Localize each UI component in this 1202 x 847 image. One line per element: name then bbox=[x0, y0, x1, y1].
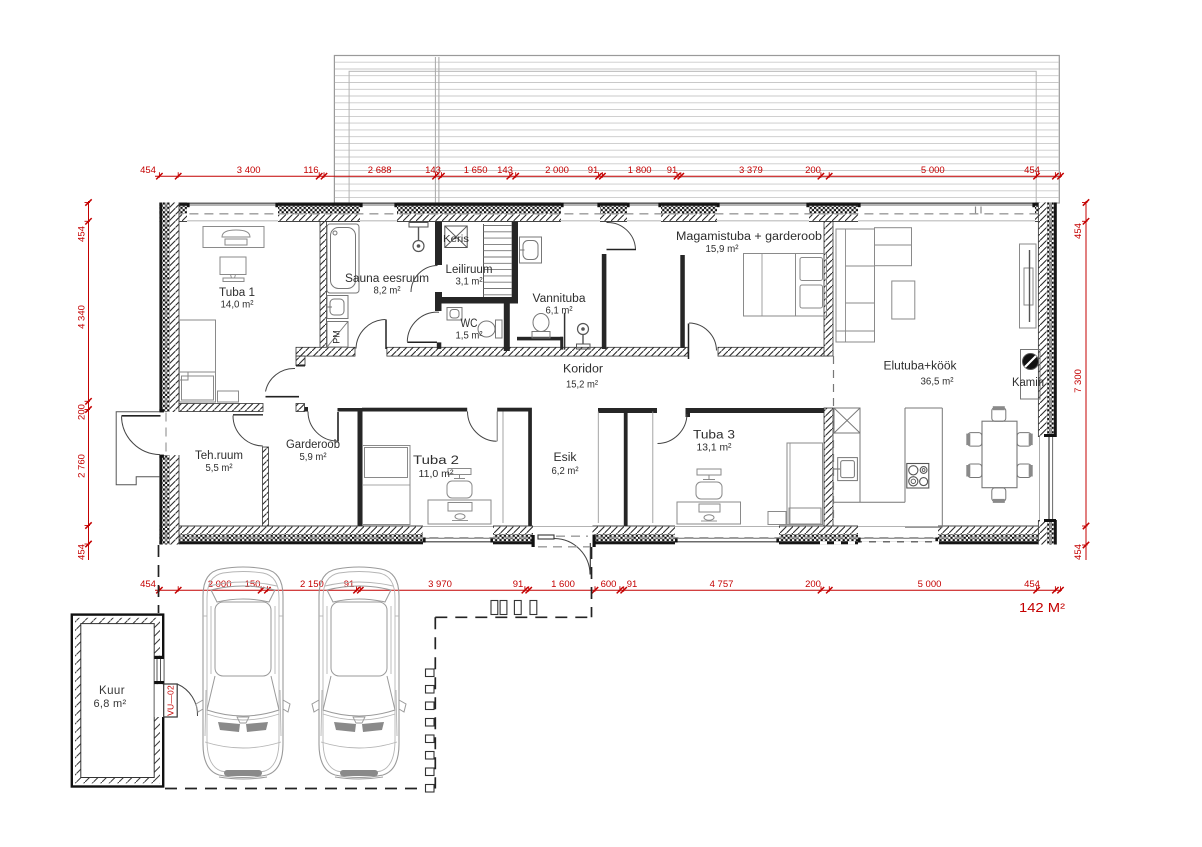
svg-text:VU—02: VU—02 bbox=[166, 685, 176, 716]
svg-text:150: 150 bbox=[245, 579, 261, 590]
svg-text:454: 454 bbox=[1073, 544, 1084, 560]
svg-text:5 000: 5 000 bbox=[921, 165, 945, 176]
svg-text:14,0 m²: 14,0 m² bbox=[221, 300, 255, 311]
svg-text:2 000: 2 000 bbox=[545, 165, 569, 176]
svg-text:4 757: 4 757 bbox=[710, 579, 734, 590]
svg-text:15,2 m²: 15,2 m² bbox=[566, 380, 599, 391]
svg-text:1,5 m²: 1,5 m² bbox=[456, 331, 484, 342]
svg-text:Leiliruum: Leiliruum bbox=[446, 264, 493, 276]
svg-text:Sauna eesruum: Sauna eesruum bbox=[345, 273, 429, 285]
svg-text:4 340: 4 340 bbox=[77, 305, 88, 329]
svg-text:142 M²: 142 M² bbox=[1019, 600, 1066, 615]
svg-text:200: 200 bbox=[77, 404, 88, 420]
svg-text:2 688: 2 688 bbox=[368, 165, 392, 176]
svg-text:WC: WC bbox=[461, 318, 478, 330]
svg-text:13,1 m²: 13,1 m² bbox=[697, 443, 733, 454]
svg-text:454: 454 bbox=[1073, 223, 1084, 239]
svg-text:6,2 m²: 6,2 m² bbox=[552, 466, 580, 477]
svg-text:91: 91 bbox=[667, 165, 678, 176]
svg-text:Vannituba: Vannituba bbox=[533, 293, 587, 305]
svg-text:454: 454 bbox=[77, 544, 88, 560]
svg-text:5,9 m²: 5,9 m² bbox=[300, 452, 328, 463]
svg-text:15,9 m²: 15,9 m² bbox=[706, 244, 740, 255]
svg-text:Tuba 3: Tuba 3 bbox=[693, 430, 735, 442]
svg-text:Esik: Esik bbox=[554, 452, 577, 464]
svg-text:2 760: 2 760 bbox=[77, 454, 88, 478]
svg-text:1 600: 1 600 bbox=[551, 579, 575, 590]
svg-text:Magamistuba + garderoob: Magamistuba + garderoob bbox=[676, 231, 822, 243]
svg-text:91: 91 bbox=[344, 579, 355, 590]
svg-text:454: 454 bbox=[140, 165, 156, 176]
svg-text:36,5 m²: 36,5 m² bbox=[921, 377, 955, 388]
svg-text:Koridor: Koridor bbox=[563, 364, 603, 376]
svg-text:7 300: 7 300 bbox=[1073, 369, 1084, 393]
svg-text:143: 143 bbox=[497, 165, 513, 176]
svg-text:3 970: 3 970 bbox=[428, 579, 452, 590]
svg-text:454: 454 bbox=[1024, 579, 1040, 590]
svg-text:8,2 m²: 8,2 m² bbox=[374, 286, 402, 297]
svg-text:5 000: 5 000 bbox=[918, 579, 942, 590]
svg-text:11,0 m²: 11,0 m² bbox=[419, 469, 455, 480]
svg-text:Kamin: Kamin bbox=[1012, 377, 1044, 389]
svg-text:Tuba 1: Tuba 1 bbox=[219, 287, 255, 299]
svg-text:5,5 m²: 5,5 m² bbox=[206, 463, 234, 474]
svg-text:454: 454 bbox=[77, 226, 88, 242]
svg-text:454: 454 bbox=[1024, 165, 1040, 176]
svg-text:6,1 m²: 6,1 m² bbox=[546, 306, 574, 317]
svg-text:1 650: 1 650 bbox=[464, 165, 488, 176]
svg-text:1 800: 1 800 bbox=[628, 165, 652, 176]
svg-text:3 400: 3 400 bbox=[237, 165, 261, 176]
svg-text:116: 116 bbox=[303, 165, 318, 176]
svg-text:200: 200 bbox=[805, 165, 821, 176]
svg-text:3 379: 3 379 bbox=[739, 165, 763, 176]
svg-text:91: 91 bbox=[627, 579, 638, 590]
svg-text:143: 143 bbox=[425, 165, 441, 176]
svg-text:91: 91 bbox=[588, 165, 599, 176]
svg-text:Tuba 2: Tuba 2 bbox=[413, 455, 459, 467]
svg-text:91: 91 bbox=[513, 579, 524, 590]
svg-text:200: 200 bbox=[805, 579, 821, 590]
svg-text:6,8 m²: 6,8 m² bbox=[94, 698, 127, 710]
svg-text:Garderoob: Garderoob bbox=[286, 439, 340, 451]
svg-text:Keris: Keris bbox=[443, 233, 469, 245]
svg-text:454: 454 bbox=[140, 579, 156, 590]
svg-text:Elutuba+köök: Elutuba+köök bbox=[884, 361, 957, 373]
svg-text:3,1 m²: 3,1 m² bbox=[456, 277, 484, 288]
svg-text:PM: PM bbox=[332, 330, 342, 344]
svg-text:600: 600 bbox=[601, 579, 617, 590]
svg-text:Kuur: Kuur bbox=[99, 685, 125, 697]
svg-text:Teh.ruum: Teh.ruum bbox=[195, 450, 243, 462]
